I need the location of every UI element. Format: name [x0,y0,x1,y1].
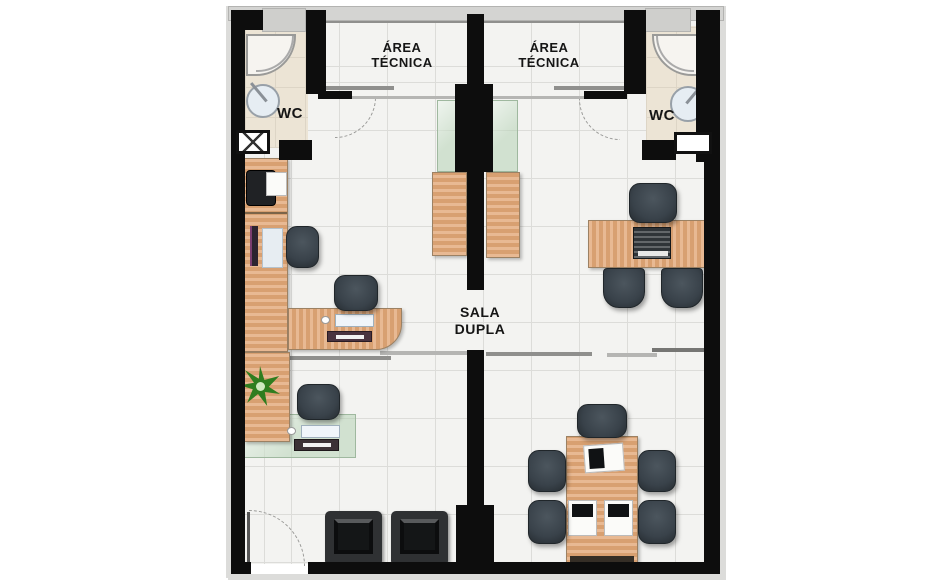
center-wall-top-stub [467,14,484,86]
tecnica-left-top-line [326,21,467,23]
room-label-wc-right: WC [644,107,680,124]
center-wall-lower-narrow [467,350,484,505]
office-chair-left-1 [286,226,319,268]
cabinet-divider [245,212,287,214]
outer-frame-bottom [228,574,726,580]
bottom-wall-left-stub [231,562,251,574]
meeting-chair-right-2 [638,500,676,544]
room-label-area-tecnica-left: ÁREA TÉCNICA [352,41,452,71]
meeting-papers-right [604,500,633,536]
meeting-chair-right-1 [638,450,676,492]
center-wall-upper [467,170,484,290]
armchair-2 [391,511,448,566]
wc-right-left-wall [624,10,646,94]
mid-partition-right-a [486,352,592,356]
wc-right-corner-wall [642,140,676,160]
meeting-chair-left-1 [528,450,566,492]
keyboard-left-desk [335,314,374,327]
floor-plan: ÁREA TÉCNICA ÁREA TÉCNICA WC WC SALA DUP… [0,0,952,588]
tecnica-right-top-line [484,21,624,23]
keyboard-glass-desk [301,425,340,438]
wc-left-window-niche [262,8,306,32]
mid-partition-right-c [652,348,704,352]
visitor-chair-right-1 [603,268,645,308]
mid-partition-left-b [380,351,468,355]
outer-frame-right [720,6,726,578]
entrance-door-leaf [247,512,250,566]
shaft-box-left [236,130,270,154]
wc-left-right-wall [306,10,326,94]
room-label-sala-dupla: SALA DUPLA [438,304,522,338]
partition-left-black [318,91,352,99]
armchair-1 [325,511,382,566]
office-chair-glass-desk [297,384,340,420]
wc-right-window-niche [645,8,691,32]
laptop-left-desk [327,331,372,342]
bottom-wall [308,562,712,574]
mid-partition-right-b [607,353,657,357]
mouse-left-desk [321,316,330,324]
partition-left-b [352,96,468,99]
partition-right-black [584,91,627,99]
mouse-glass-desk [287,427,296,435]
left-wall [231,16,245,574]
room-label-area-tecnica-right: ÁREA TÉCNICA [499,41,599,71]
visitor-chair-right-2 [661,268,703,308]
monitor [250,226,258,266]
center-column [455,84,493,172]
shaft-box-right [674,132,712,154]
meeting-chair-head [577,404,627,438]
laptop-right-desk [633,227,671,259]
wc-left-corner-wall [279,140,312,160]
partition-right-b [486,96,600,99]
meeting-papers-head [583,443,625,474]
center-cabinet-left [432,172,467,256]
printer-paper [266,172,287,196]
center-cabinet-right [486,172,520,258]
top-left-corner-wall [231,10,263,30]
center-wall-lower-wide [456,505,494,567]
room-label-wc-left: WC [272,105,308,122]
office-chair-left-2 [334,275,378,311]
laptop-glass-desk [294,439,339,451]
keyboard-tray [262,228,283,268]
meeting-chair-left-2 [528,500,566,544]
office-chair-right [629,183,677,223]
meeting-papers-left [568,500,597,536]
